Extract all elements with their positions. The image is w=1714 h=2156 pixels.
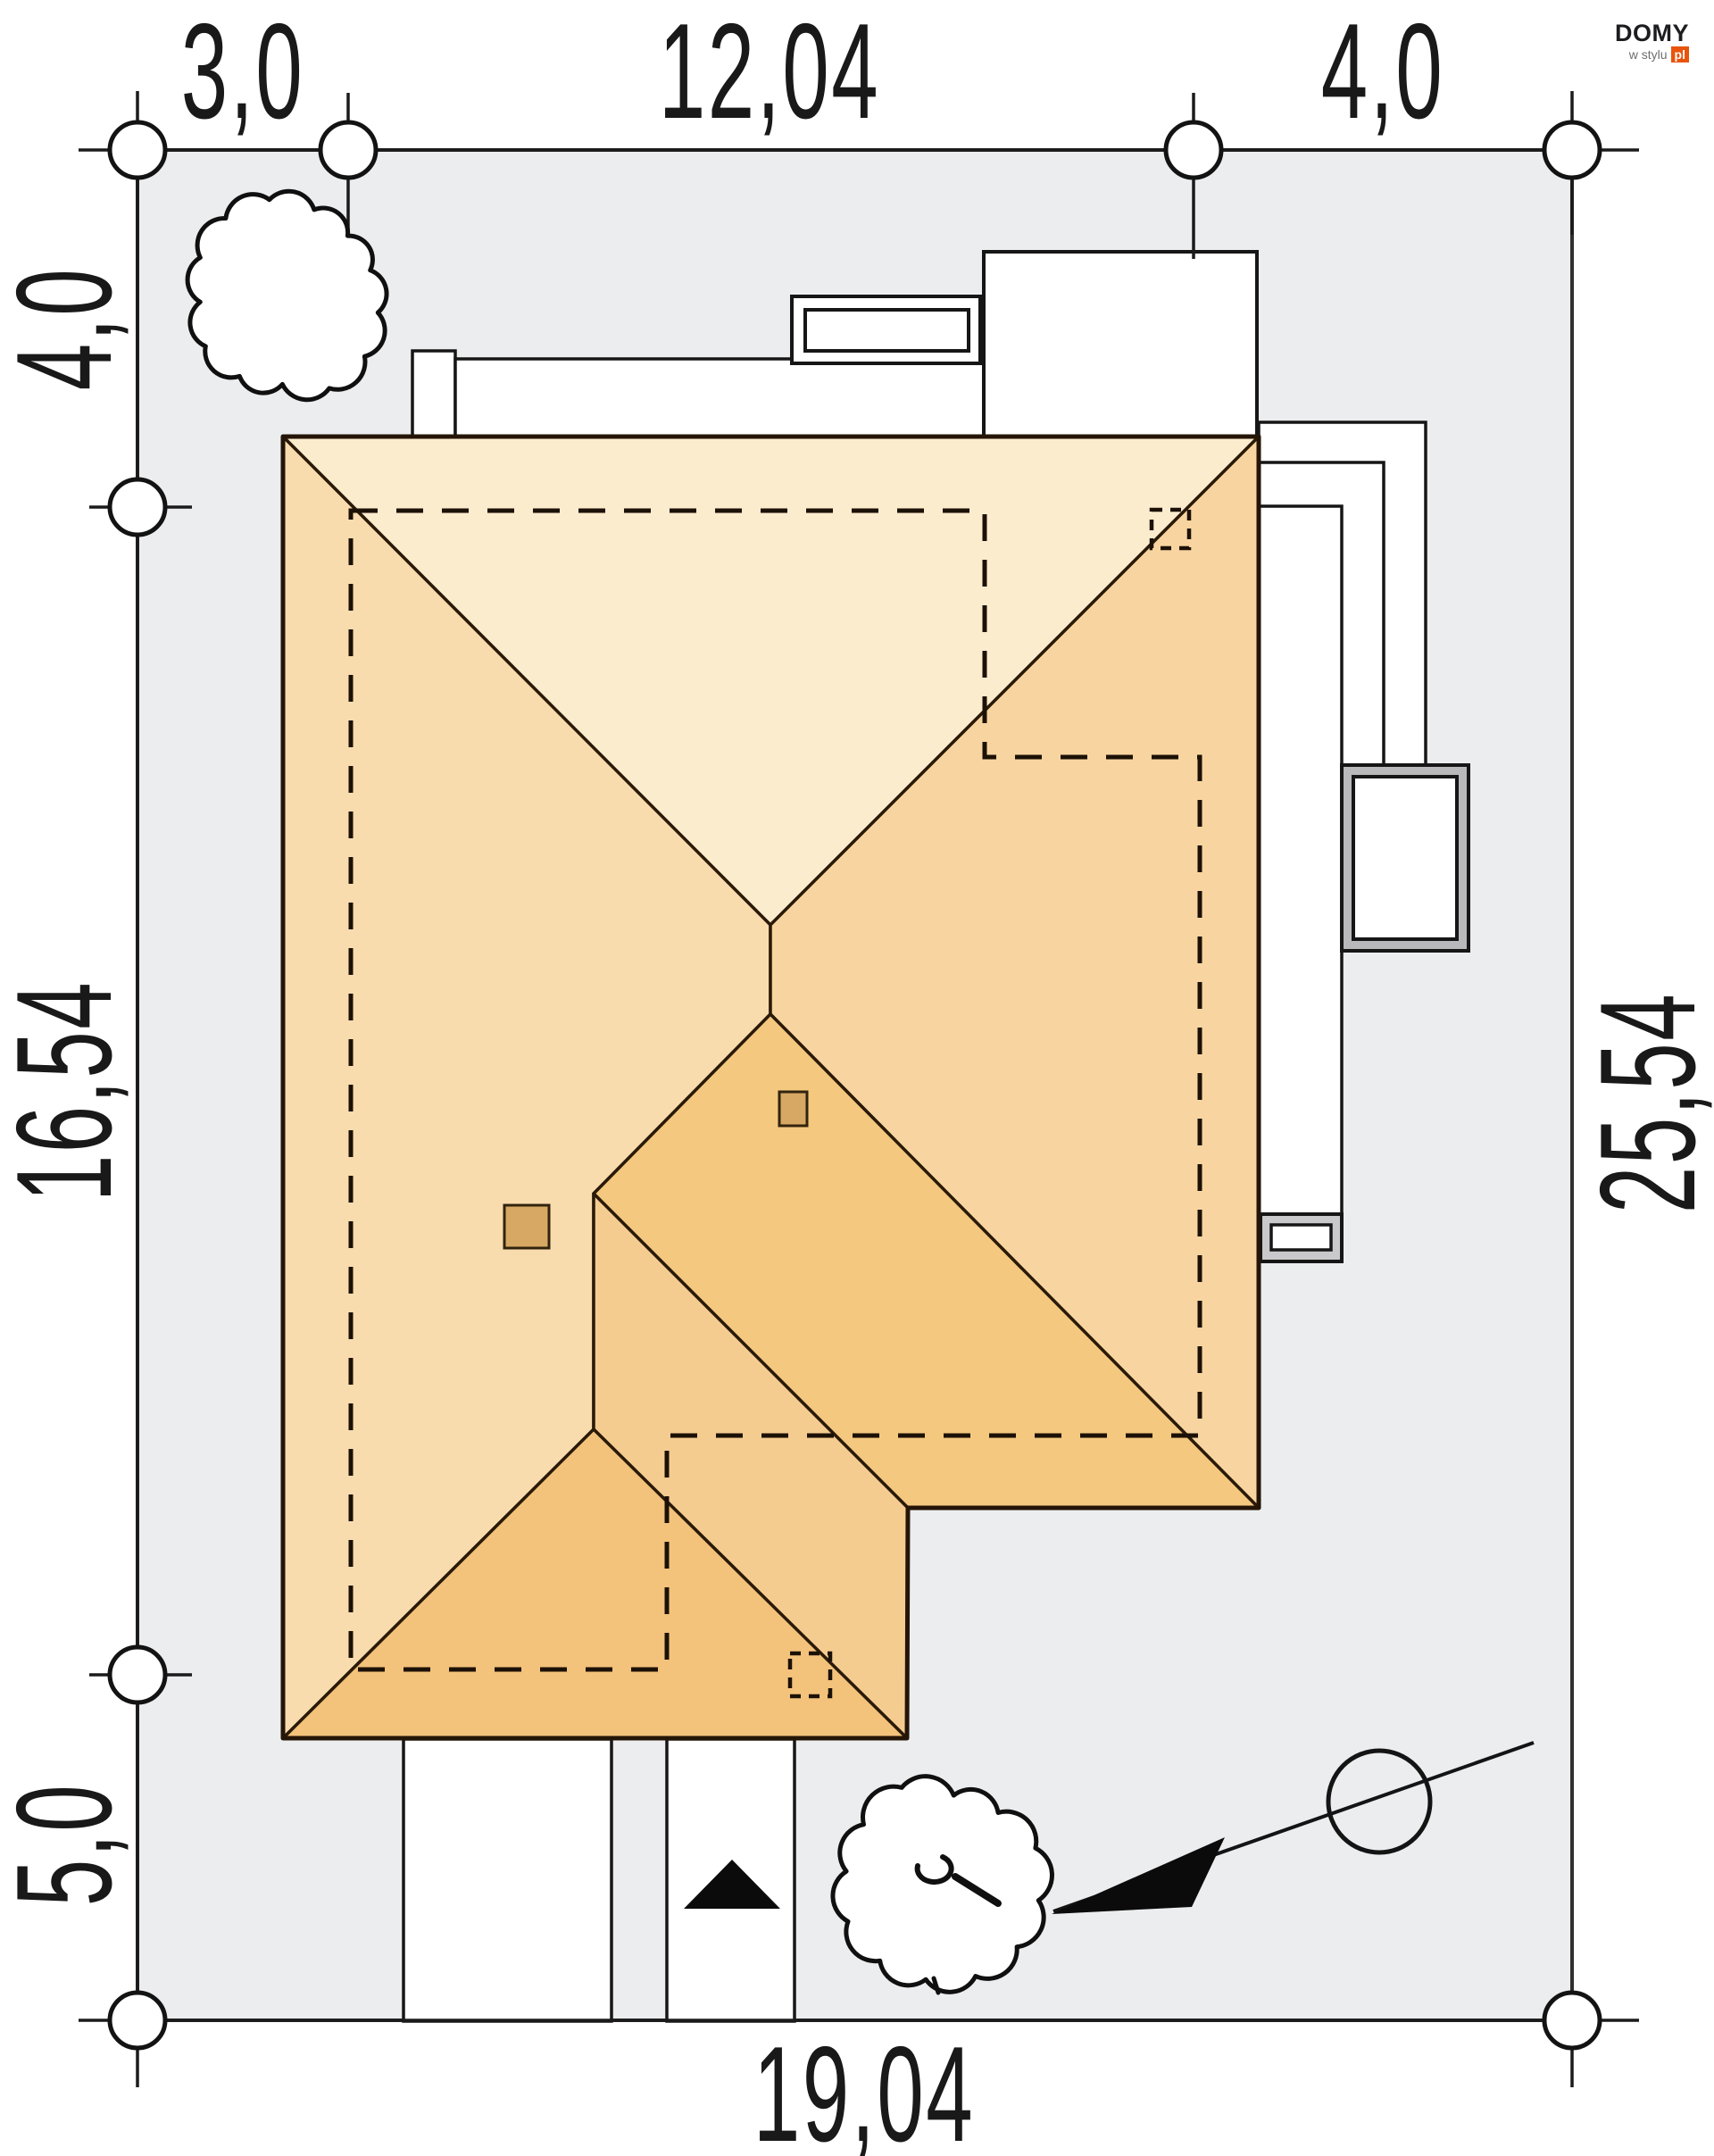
dim-right-25-54: 25,54 [1580,992,1714,1213]
dim-top-3-0: 3,0 [181,4,304,139]
dim-left-4-0: 4,0 [0,267,132,390]
dim-marker-circle [1544,122,1600,178]
terrace-right-inner [1259,506,1342,1214]
dim-top-4-0: 4,0 [1321,4,1444,139]
driveway [404,1739,612,2021]
terrace-step-left [412,351,455,437]
dim-marker-circle [110,1647,165,1702]
dim-left-5-0: 5,0 [0,1783,132,1906]
dim-marker-circle [110,122,165,178]
brand-logo: DOMY w stylu pl [1615,21,1689,62]
terrace-slab-top [455,359,984,437]
brand-name: DOMY [1615,21,1689,46]
bay-window-inner [1353,777,1457,939]
dim-left-16-54: 16,54 [0,980,132,1202]
site-plan: 3,0 12,04 4,0 4,0 16,54 5,0 25,54 19,04 … [0,0,1714,2156]
dim-marker-circle [1544,1993,1600,2048]
dim-marker-circle [1166,122,1221,178]
entry-step-inner [1271,1225,1331,1250]
site-plan-drawing [0,0,1714,2156]
garage-block [984,252,1257,437]
brand-tagline: w stylu [1629,48,1668,61]
dim-marker-circle [110,1993,165,2048]
dim-top-12-04: 12,04 [659,4,880,139]
brand-tld-badge: pl [1671,46,1689,62]
dim-bottom-19-04: 19,04 [753,2027,975,2156]
dim-marker-circle [110,479,165,535]
chimney-1 [779,1092,807,1126]
dim-marker-circle [320,122,376,178]
skylight-frame-inner [805,310,969,351]
chimney-2 [504,1205,549,1248]
